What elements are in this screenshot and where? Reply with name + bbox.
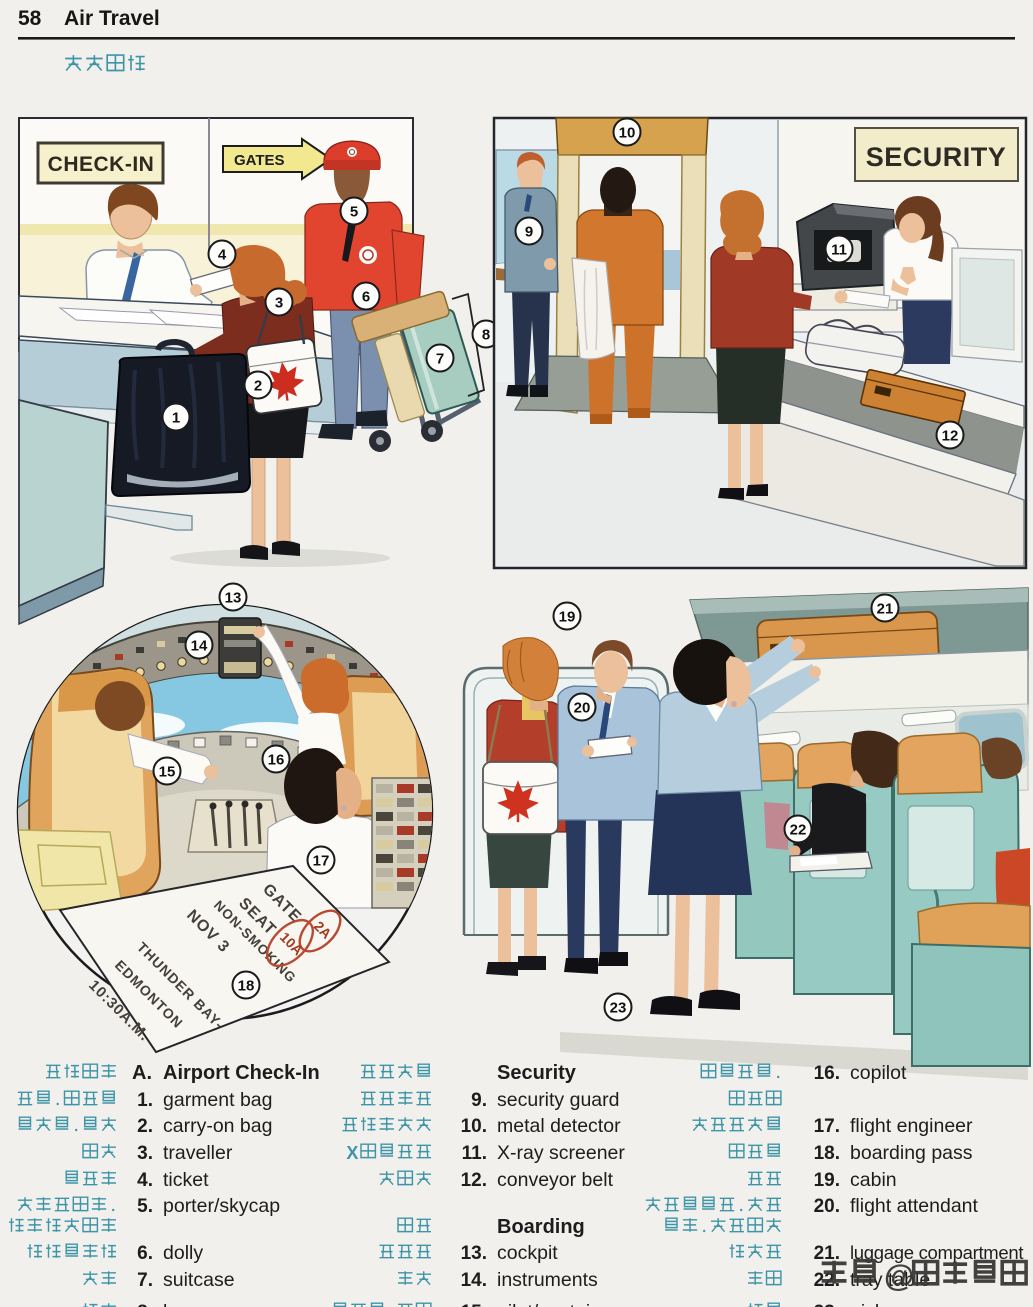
svg-text:15: 15 [159,764,176,781]
svg-text:15.: 15. [461,1302,487,1307]
svg-text:6.: 6. [137,1243,153,1264]
svg-text:7.: 7. [137,1270,153,1291]
svg-text:16: 16 [268,752,285,769]
svg-text:boarding pass: boarding pass [850,1142,973,1164]
svg-text:9: 9 [525,224,533,241]
svg-text:Airport Check-In: Airport Check-In [163,1062,320,1084]
svg-text:10.: 10. [461,1116,487,1137]
svg-text:conveyor belt: conveyor belt [497,1169,614,1191]
svg-text:3: 3 [275,295,283,312]
svg-text:18.: 18. [814,1143,840,1164]
svg-text:aisle: aisle [850,1301,890,1307]
svg-text:58: 58 [18,7,42,30]
svg-text:21.: 21. [814,1243,840,1264]
svg-text:flight attendant: flight attendant [850,1195,979,1217]
svg-text:@: @ [884,1258,914,1293]
svg-text:cockpit: cockpit [497,1242,558,1264]
svg-text:12.: 12. [461,1170,487,1191]
svg-text:20: 20 [574,700,591,717]
svg-text:flight engineer: flight engineer [850,1115,973,1137]
svg-text:copilot: copilot [850,1062,907,1084]
svg-text:5: 5 [350,204,358,221]
svg-text:21: 21 [877,601,894,618]
svg-text:garment bag: garment bag [163,1089,273,1111]
svg-text:11: 11 [831,242,847,259]
svg-text:4.: 4. [137,1170,153,1191]
svg-text:17.: 17. [814,1116,840,1137]
svg-text:4: 4 [218,247,227,264]
svg-text:20.: 20. [814,1196,840,1217]
svg-text:10: 10 [619,125,636,142]
svg-text:14: 14 [191,638,208,655]
svg-text:5.: 5. [137,1196,153,1217]
svg-text:X-ray screener: X-ray screener [497,1142,625,1164]
svg-text:11.: 11. [462,1143,487,1164]
svg-text:17: 17 [313,853,330,870]
svg-text:8: 8 [482,327,490,344]
svg-text:Air Travel: Air Travel [64,7,160,30]
svg-text:porter/skycap: porter/skycap [163,1195,280,1217]
svg-text:Boarding: Boarding [497,1216,585,1238]
svg-text:instruments: instruments [497,1269,598,1291]
svg-text:baggage: baggage [163,1301,239,1307]
svg-text:3.: 3. [137,1143,153,1164]
svg-text:metal detector: metal detector [497,1115,621,1137]
svg-text:2: 2 [254,378,262,395]
svg-text:X: X [346,1143,358,1163]
svg-text:dolly: dolly [163,1242,203,1264]
svg-text:23.: 23. [814,1302,840,1307]
svg-text:19: 19 [559,609,576,626]
svg-text:23: 23 [610,1000,627,1017]
svg-text:cabin: cabin [850,1169,897,1191]
svg-text:Security: Security [497,1062,577,1084]
svg-text:16.: 16. [814,1063,840,1084]
svg-text:CHECK-IN: CHECK-IN [48,153,155,176]
svg-text:13.: 13. [461,1243,487,1264]
svg-text:ticket: ticket [163,1169,209,1191]
svg-text:8.: 8. [137,1302,153,1307]
svg-text:13: 13 [225,590,242,607]
svg-text:1: 1 [172,410,180,427]
svg-text:14.: 14. [461,1270,487,1291]
svg-text:9.: 9. [471,1090,487,1111]
svg-text:pilot/captain: pilot/captain [497,1301,601,1307]
svg-text:7: 7 [436,351,444,368]
svg-text:suitcase: suitcase [163,1269,235,1291]
svg-text:1.: 1. [137,1090,153,1111]
svg-text:security guard: security guard [497,1089,619,1111]
svg-text:22: 22 [790,822,807,839]
svg-text:traveller: traveller [163,1142,233,1164]
svg-text:GATES: GATES [234,152,285,169]
svg-text:A.: A. [132,1062,152,1084]
svg-text:2.: 2. [137,1116,153,1137]
svg-text:19.: 19. [814,1170,840,1191]
svg-text:12: 12 [942,428,959,445]
svg-text:6: 6 [362,289,370,306]
svg-text:carry-on bag: carry-on bag [163,1115,272,1137]
svg-text:SECURITY: SECURITY [866,142,1007,172]
svg-text:18: 18 [238,978,255,995]
